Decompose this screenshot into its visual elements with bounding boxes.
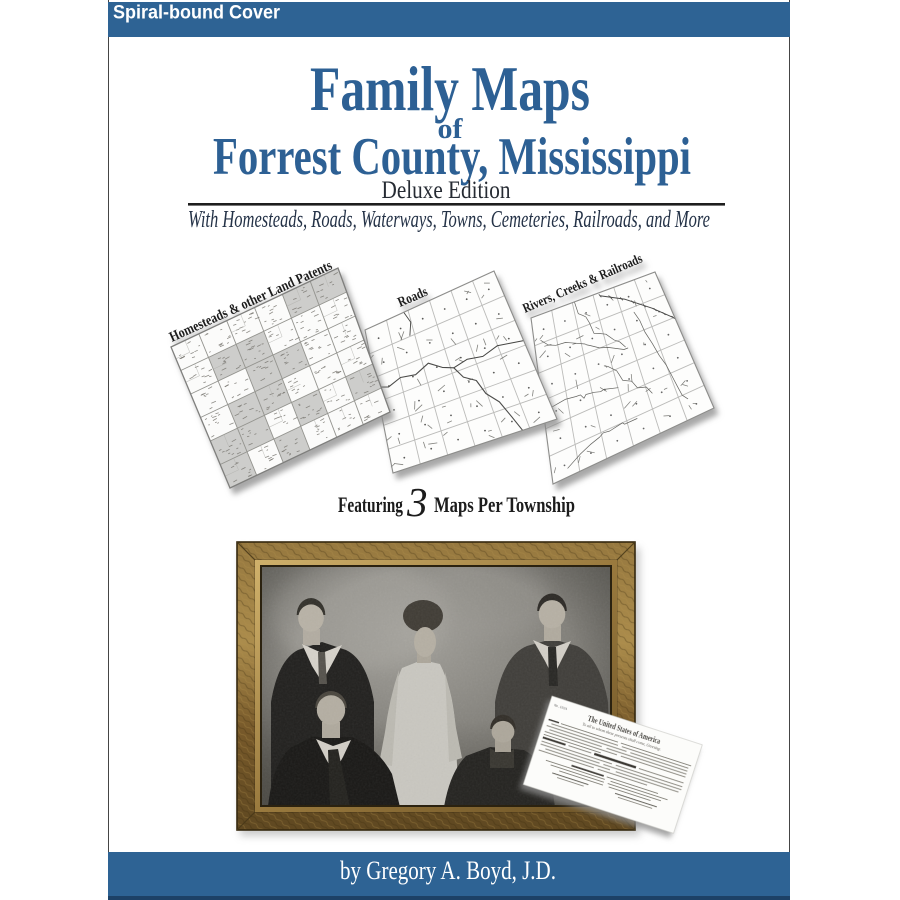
svg-text:Featuring: Featuring — [338, 492, 403, 517]
svg-text:With Homesteads, Roads, Waterw: With Homesteads, Roads, Waterways, Towns… — [188, 207, 710, 233]
svg-text:Spiral-bound Cover: Spiral-bound Cover — [113, 3, 281, 24]
svg-text:Maps Per Township: Maps Per Township — [434, 492, 575, 517]
svg-text:by Gregory A. Boyd, J.D.: by Gregory A. Boyd, J.D. — [340, 856, 556, 885]
svg-text:Deluxe Edition: Deluxe Edition — [382, 177, 511, 204]
svg-text:3: 3 — [406, 479, 428, 525]
